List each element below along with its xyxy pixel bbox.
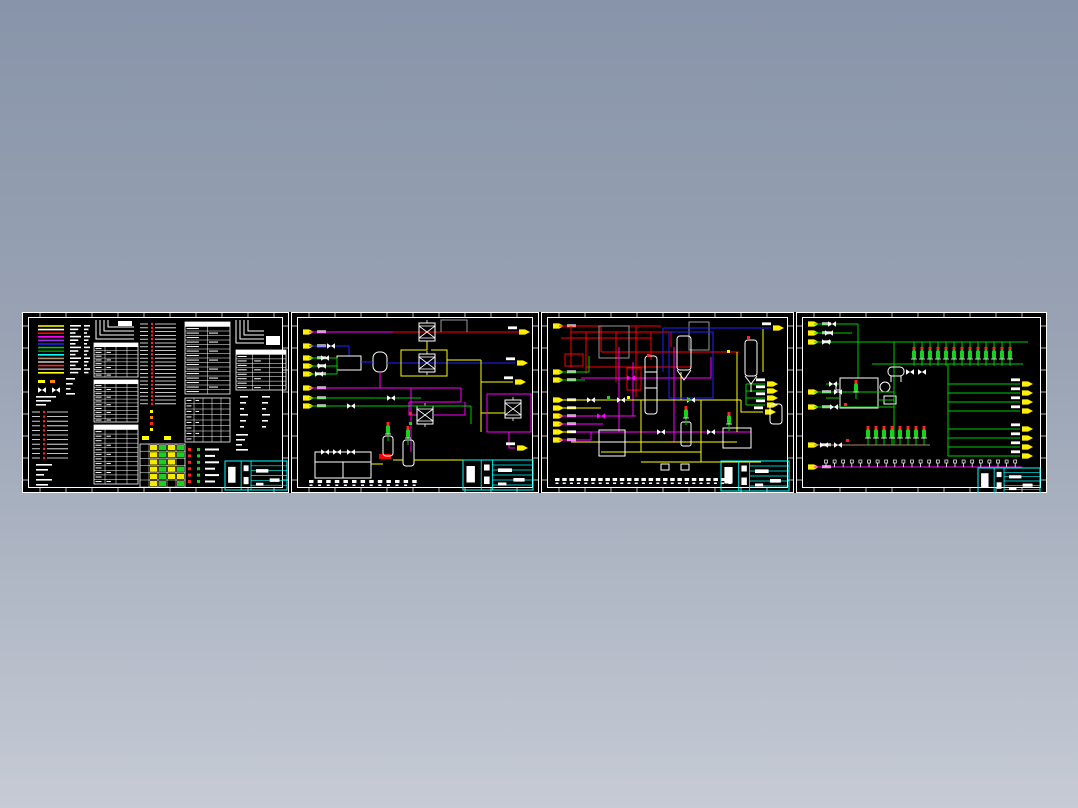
sheet-panel-legend-and-tables (22, 312, 289, 493)
sheet-canvas-distribution-diagram (796, 312, 1047, 493)
preview-background (0, 0, 1078, 808)
sheet-canvas-process-flow-2 (541, 312, 794, 493)
cad-drawing-strip[interactable] (22, 312, 1047, 493)
sheet-panel-distribution-diagram (796, 312, 1047, 493)
sheet-panel-process-flow-1 (291, 312, 539, 493)
sheet-canvas-legend-and-tables (22, 312, 289, 493)
sheet-canvas-process-flow-1 (291, 312, 539, 493)
sheet-panel-process-flow-2 (541, 312, 794, 493)
